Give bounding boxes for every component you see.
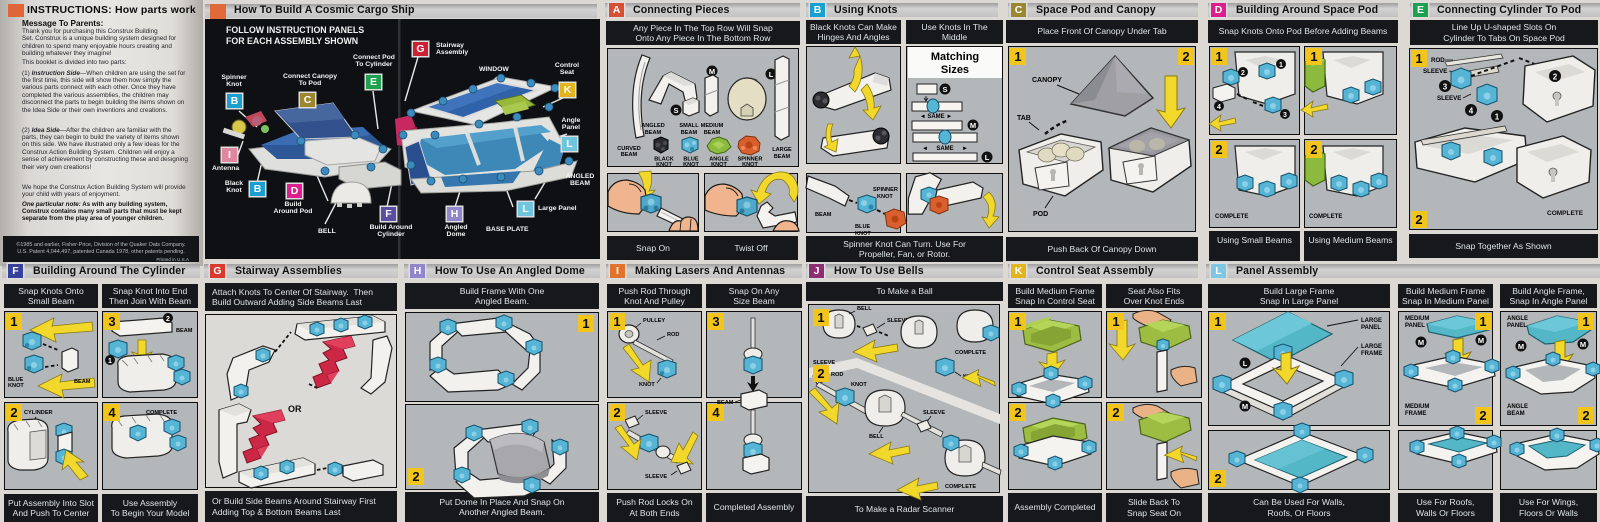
svg-text:4: 4 bbox=[1469, 107, 1474, 116]
svg-text:PULLEY: PULLEY bbox=[643, 318, 665, 324]
svg-text:TAB: TAB bbox=[1017, 115, 1031, 122]
svg-text:FRAME: FRAME bbox=[1405, 411, 1426, 417]
svg-text:2: 2 bbox=[1241, 70, 1245, 77]
svg-text:KNOT: KNOT bbox=[683, 162, 699, 168]
svg-text:L: L bbox=[769, 70, 774, 79]
svg-text:ROD: ROD bbox=[1431, 57, 1445, 64]
svg-text:KNOT: KNOT bbox=[639, 382, 655, 388]
svg-text:1: 1 bbox=[1495, 113, 1500, 122]
svg-text:ANGLE: ANGLE bbox=[1507, 316, 1528, 322]
svg-text:Sizes: Sizes bbox=[941, 64, 969, 76]
svg-text:L: L bbox=[985, 153, 990, 162]
svg-text:M: M bbox=[1478, 336, 1484, 345]
svg-text:Matching: Matching bbox=[931, 51, 979, 63]
svg-text:3: 3 bbox=[1443, 83, 1448, 92]
svg-text:KNOT: KNOT bbox=[742, 162, 758, 168]
svg-text:BEAM: BEAM bbox=[704, 130, 721, 136]
svg-text:◄ SAME ►: ◄ SAME ► bbox=[920, 114, 953, 120]
svg-text:ANGLE: ANGLE bbox=[1507, 404, 1528, 410]
svg-text:FOLLOW INSTRUCTION PANELS: FOLLOW INSTRUCTION PANELS bbox=[226, 25, 364, 35]
svg-text:ANGLED: ANGLED bbox=[641, 123, 665, 129]
svg-text:KNOT: KNOT bbox=[855, 231, 871, 237]
svg-text:S: S bbox=[673, 106, 678, 115]
svg-text:L: L bbox=[1243, 359, 1248, 368]
svg-text:KNOT: KNOT bbox=[656, 162, 672, 168]
svg-text:BEAM: BEAM bbox=[1507, 411, 1525, 417]
svg-text:BEAM: BEAM bbox=[176, 328, 193, 334]
svg-text:BEAM: BEAM bbox=[681, 130, 698, 136]
svg-text:M: M bbox=[1242, 402, 1248, 411]
svg-text:MEDIUM: MEDIUM bbox=[701, 123, 724, 129]
svg-text:COMPLETE: COMPLETE bbox=[945, 484, 976, 490]
svg-text:M: M bbox=[1518, 342, 1524, 351]
svg-text:BEAM: BEAM bbox=[774, 154, 791, 160]
svg-text:KNOT: KNOT bbox=[877, 194, 893, 200]
svg-text:COMPLETE: COMPLETE bbox=[955, 350, 986, 356]
svg-text:PANEL: PANEL bbox=[1507, 323, 1527, 329]
svg-text:ROD: ROD bbox=[831, 372, 843, 378]
svg-text:M: M bbox=[970, 121, 976, 130]
svg-text:3: 3 bbox=[1283, 112, 1287, 119]
svg-text:MEDIUM: MEDIUM bbox=[1405, 404, 1429, 410]
svg-text:CANOPY: CANOPY bbox=[1032, 77, 1062, 84]
svg-text:LARGE: LARGE bbox=[1361, 344, 1382, 350]
svg-text:S: S bbox=[942, 85, 947, 94]
svg-text:BELL: BELL bbox=[857, 306, 872, 312]
svg-text:PANEL: PANEL bbox=[1361, 325, 1381, 331]
svg-text:KNOT: KNOT bbox=[851, 382, 867, 388]
svg-text:◄ SAME ►: ◄ SAME ► bbox=[922, 146, 968, 152]
svg-text:M: M bbox=[1418, 338, 1424, 347]
svg-text:PANEL: PANEL bbox=[1405, 323, 1425, 329]
svg-text:4: 4 bbox=[1217, 104, 1221, 111]
svg-text:2: 2 bbox=[166, 316, 170, 323]
svg-text:BEAM: BEAM bbox=[74, 379, 91, 385]
svg-text:M: M bbox=[709, 67, 715, 76]
svg-text:MEDIUM: MEDIUM bbox=[1405, 316, 1429, 322]
svg-text:2: 2 bbox=[1553, 73, 1558, 82]
svg-text:M: M bbox=[1580, 340, 1586, 349]
svg-text:KNOT: KNOT bbox=[8, 383, 24, 389]
svg-text:COMPLETE: COMPLETE bbox=[1215, 214, 1248, 220]
svg-text:SLEEVE: SLEEVE bbox=[923, 410, 945, 416]
svg-text:BEAM: BEAM bbox=[645, 130, 662, 136]
svg-text:SMALL: SMALL bbox=[679, 123, 699, 129]
svg-text:COMPLETE: COMPLETE bbox=[1309, 214, 1342, 220]
svg-text:FOR EACH ASSEMBLY SHOWN: FOR EACH ASSEMBLY SHOWN bbox=[226, 36, 358, 46]
svg-text:SLEEVE: SLEEVE bbox=[1423, 68, 1447, 75]
svg-text:BLUE: BLUE bbox=[855, 224, 870, 230]
svg-text:LARGE: LARGE bbox=[1361, 318, 1382, 324]
svg-text:LARGE: LARGE bbox=[772, 147, 792, 153]
svg-text:BEAM: BEAM bbox=[815, 212, 832, 218]
svg-text:BEAM: BEAM bbox=[621, 152, 638, 158]
svg-text:FRAME: FRAME bbox=[1361, 351, 1382, 357]
svg-text:1: 1 bbox=[108, 358, 112, 365]
svg-text:SLEEVE: SLEEVE bbox=[1437, 95, 1461, 102]
svg-text:SLEEVE: SLEEVE bbox=[645, 410, 667, 416]
svg-text:CYLINDER: CYLINDER bbox=[24, 410, 53, 416]
svg-text:ROD: ROD bbox=[667, 332, 679, 338]
svg-text:SLEEVE: SLEEVE bbox=[645, 474, 667, 480]
svg-text:POD: POD bbox=[1033, 211, 1048, 218]
svg-text:SPINNER: SPINNER bbox=[873, 187, 898, 193]
svg-text:KNOT: KNOT bbox=[711, 162, 727, 168]
svg-text:1: 1 bbox=[1279, 62, 1283, 69]
svg-text:BELL: BELL bbox=[869, 434, 884, 440]
